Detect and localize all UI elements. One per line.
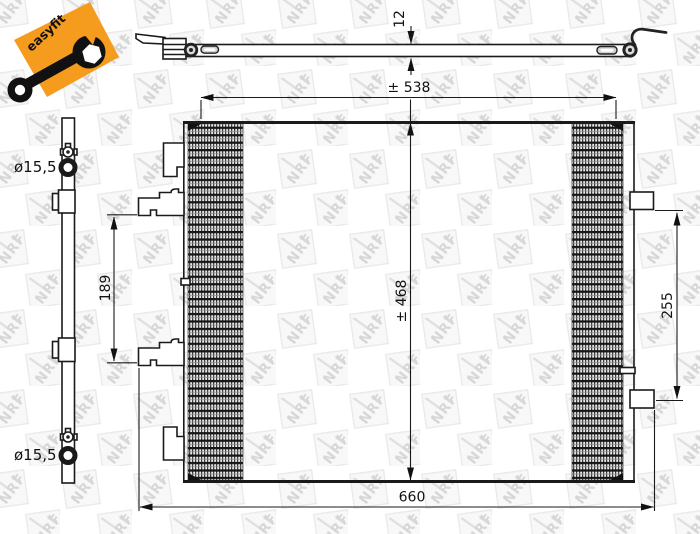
dim-189-label: 189 xyxy=(98,275,114,302)
dim-538-label: ± 538 xyxy=(388,80,431,96)
technical-drawing-canvas: NRF NRF xyxy=(0,0,700,534)
right-core-mesh xyxy=(572,124,623,481)
dim-660-label: 660 xyxy=(399,490,426,506)
lower-bracket-flange xyxy=(53,342,59,359)
dim-12-label: 12 xyxy=(392,10,408,28)
condenser-technical-drawing-page: NRF NRF xyxy=(0,0,700,534)
top-port xyxy=(61,161,75,175)
left-core-mesh xyxy=(188,124,243,481)
right-edge-notch xyxy=(620,368,635,374)
lower-right-tab xyxy=(630,390,654,408)
upper-right-tab xyxy=(630,192,654,210)
upper-bracket-block xyxy=(59,190,76,213)
left-grommet xyxy=(184,43,198,57)
lower-bracket-block xyxy=(59,338,76,362)
upper-bracket-flange xyxy=(53,194,59,211)
dim-468-label: ± 468 xyxy=(394,280,410,323)
top-port-diameter-label: ø15,5 xyxy=(14,158,57,176)
bottom-port xyxy=(61,449,75,463)
dim-255-label: 255 xyxy=(660,292,676,319)
left-edge-notch xyxy=(181,279,190,286)
bottom-port-diameter-label: ø15,5 xyxy=(14,446,57,464)
